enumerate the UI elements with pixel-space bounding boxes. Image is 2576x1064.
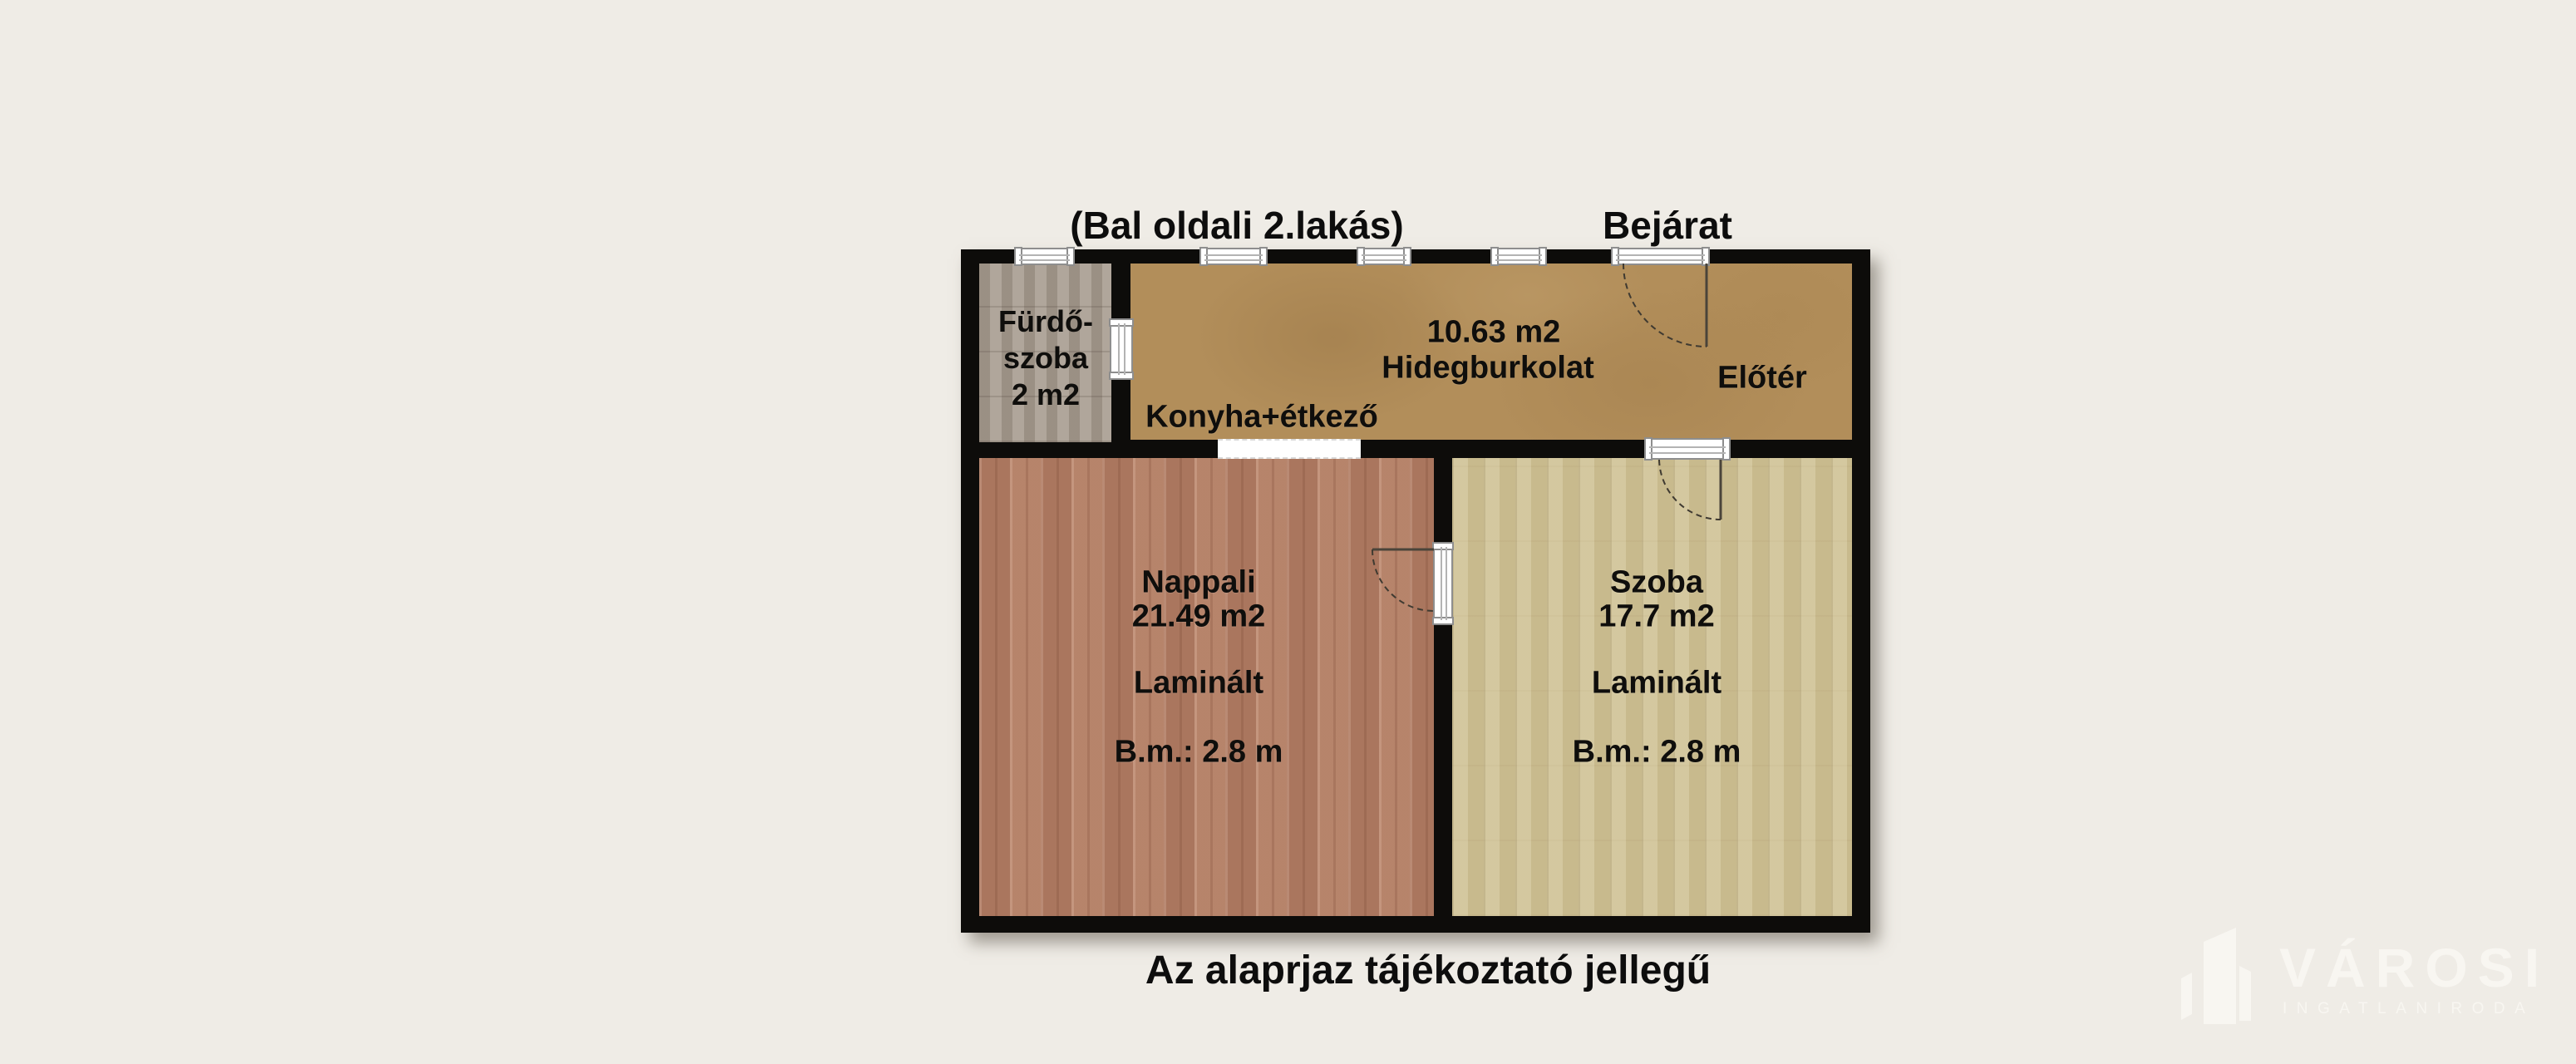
bathroom-name-line1: Fürdő-: [998, 304, 1093, 338]
bedroom-area: 17.7 m2: [1598, 599, 1714, 635]
buildings-icon: [2181, 928, 2258, 1029]
bedroom-flooring: Laminált: [1592, 666, 1721, 702]
living-room-flooring: Laminált: [1134, 666, 1263, 702]
bathroom-label: Fürdő- szoba 2 m2: [998, 303, 1093, 413]
entrance-label: Bejárat: [1603, 203, 1732, 248]
living-door-arc: [1372, 549, 1434, 611]
hall-name: Előtér: [1717, 361, 1807, 397]
living-room-name: Nappali: [1141, 565, 1255, 601]
floorplan: Fürdő- szoba 2 m2 10.63 m2 Hidegburkolat…: [961, 249, 1870, 933]
bedroom-door-arc: [1659, 460, 1721, 520]
kitchen-area: 10.63 m2: [1427, 315, 1561, 351]
bedroom-ceiling-height: B.m.: 2.8 m: [1573, 735, 1741, 771]
living-room-area: 21.49 m2: [1132, 599, 1266, 635]
watermark-brand: VÁROSI: [2279, 936, 2549, 999]
plan-title: (Bal oldali 2.lakás): [1070, 203, 1403, 248]
entrance-door-arc: [1623, 264, 1707, 347]
watermark-subtitle: INGATLANIRODA: [2283, 1000, 2534, 1018]
living-room-ceiling-height: B.m.: 2.8 m: [1115, 735, 1283, 771]
bedroom-name: Szoba: [1610, 565, 1703, 601]
kitchen-flooring: Hidegburkolat: [1382, 351, 1593, 387]
disclaimer-caption: Az alaprjaz tájékoztató jellegű: [1145, 948, 1711, 993]
kitchen-name: Konyha+étkező: [1145, 400, 1378, 436]
bathroom-area: 2 m2: [1012, 377, 1080, 411]
bathroom-name-line2: szoba: [1003, 341, 1088, 375]
